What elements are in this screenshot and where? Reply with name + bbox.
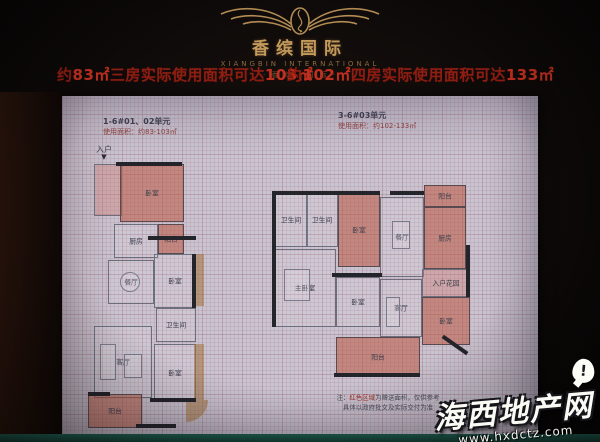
wall (334, 373, 420, 377)
room-bedroom-1: 卧室 (120, 164, 184, 222)
headline-right: 约102㎡四房实际使用面积可达133㎡ (287, 64, 554, 85)
headline-right-value: 133㎡ (506, 66, 554, 84)
right-unit-area-note: 使用面积：约102-133㎡ (338, 122, 416, 131)
room-label: 卫生间 (312, 215, 332, 224)
right-unit-header: 3-6#03单元 使用面积：约102-133㎡ (338, 111, 416, 131)
room-label: 阳台 (108, 406, 122, 415)
room-kitchen: 厨房 (114, 224, 158, 258)
entry-arrow-icon: ▼ (96, 154, 112, 161)
room-label: 卧室 (168, 368, 182, 377)
headline-right-text: 四房实际使用面积可达 (351, 66, 506, 84)
wall (272, 191, 276, 327)
wall (332, 273, 382, 277)
disclaimer-highlight: 红色区域 (349, 394, 375, 401)
room-label: 阳台 (371, 352, 385, 361)
wall (116, 162, 182, 166)
room-label: 入户花园 (432, 278, 459, 287)
headline-right-prefix: 约 (287, 66, 303, 84)
left-unit-title: 1-6#01、02单元 (103, 117, 177, 128)
room-label: 卫生间 (281, 215, 301, 224)
tv-cabinet (124, 354, 142, 378)
wall (390, 191, 424, 195)
room-balcony-big: 阳台 (336, 337, 420, 377)
room-bathroom: 卫生间 (156, 308, 196, 342)
bay-window (194, 344, 204, 400)
room-balcony-big: 阳台 (88, 394, 142, 428)
wall (192, 254, 196, 308)
room-entry-garden: 入户花园 (422, 269, 470, 297)
room-label: 厨房 (129, 236, 143, 245)
headline-left-text: 三房实际使用面积可达 (110, 66, 265, 84)
room-bathroom-1: 卫生间 (274, 193, 308, 247)
room-label: 卫生间 (166, 320, 186, 329)
right-unit-title: 3-6#03单元 (338, 111, 416, 122)
exclamation-bubble-icon: ! (571, 358, 595, 384)
room-bathroom-2: 卫生间 (306, 193, 338, 247)
wings-emblem-icon (215, 2, 385, 36)
wall (136, 424, 176, 428)
disclaimer-pre: 注： (336, 394, 349, 401)
headline-right-area: 102㎡ (303, 66, 351, 84)
room-kitchen: 厨房 (424, 207, 466, 269)
headline-left: 约83㎡三房实际使用面积可达103㎡ (57, 64, 313, 85)
wall (88, 392, 110, 396)
room-label: 厨房 (438, 233, 452, 242)
entry-label: 入户 ▼ (96, 146, 112, 161)
room-label: 卧室 (351, 297, 365, 306)
room-bedroom-a: 卧室 (338, 193, 380, 267)
dining-table (392, 221, 410, 249)
disclaimer-post: 为赠送面积，仅供参考 (375, 394, 439, 401)
room-label: 卧室 (145, 188, 159, 197)
slide-photo: 香缤国际 XIANGBIN INTERNATIONAL · 香 缤 · 国 际 … (0, 0, 600, 442)
left-unit-header: 1-6#01、02单元 使用面积：约83-103㎡ (103, 117, 177, 137)
headline-left-area: 83㎡ (73, 66, 110, 84)
wall (272, 191, 380, 195)
sofa (100, 344, 116, 380)
room-label: 阳台 (438, 191, 452, 200)
bed (284, 269, 310, 301)
room-bedroom-2: 卧室 (154, 254, 196, 308)
floorplan-right: 卫生间 卫生间 卧室 餐厅 阳台 厨房 入户花园 主卧室 卧室 客厅 卧室 阳台 (272, 185, 477, 380)
entry-corridor (94, 164, 122, 216)
sofa (386, 297, 400, 327)
headline-left-prefix: 约 (57, 66, 73, 84)
wall (466, 245, 470, 297)
corner-bay (186, 400, 208, 422)
floorplan-panel: 1-6#01、02单元 使用面积：约83-103㎡ 3-6#03单元 使用面积：… (62, 96, 538, 435)
wall (148, 236, 196, 240)
room-label: 卧室 (168, 276, 182, 285)
brand-name: 香缤国际 (0, 34, 600, 59)
room-bedroom-c: 卧室 (336, 277, 380, 327)
room-balcony-top: 阳台 (424, 185, 466, 207)
photo-left-shadow (0, 92, 62, 442)
room-label: 卧室 (352, 225, 366, 234)
left-unit-area-note: 使用面积：约83-103㎡ (103, 128, 177, 137)
floorplan-left: 入户 ▼ 卧室 厨房 阳台 餐厅 卧室 卫生间 客厅 卧室 阳台 (90, 148, 210, 432)
room-bedroom-3: 卧室 (154, 344, 196, 402)
dining-table (120, 272, 140, 292)
wall (150, 398, 196, 402)
room-label: 卧室 (439, 316, 453, 325)
